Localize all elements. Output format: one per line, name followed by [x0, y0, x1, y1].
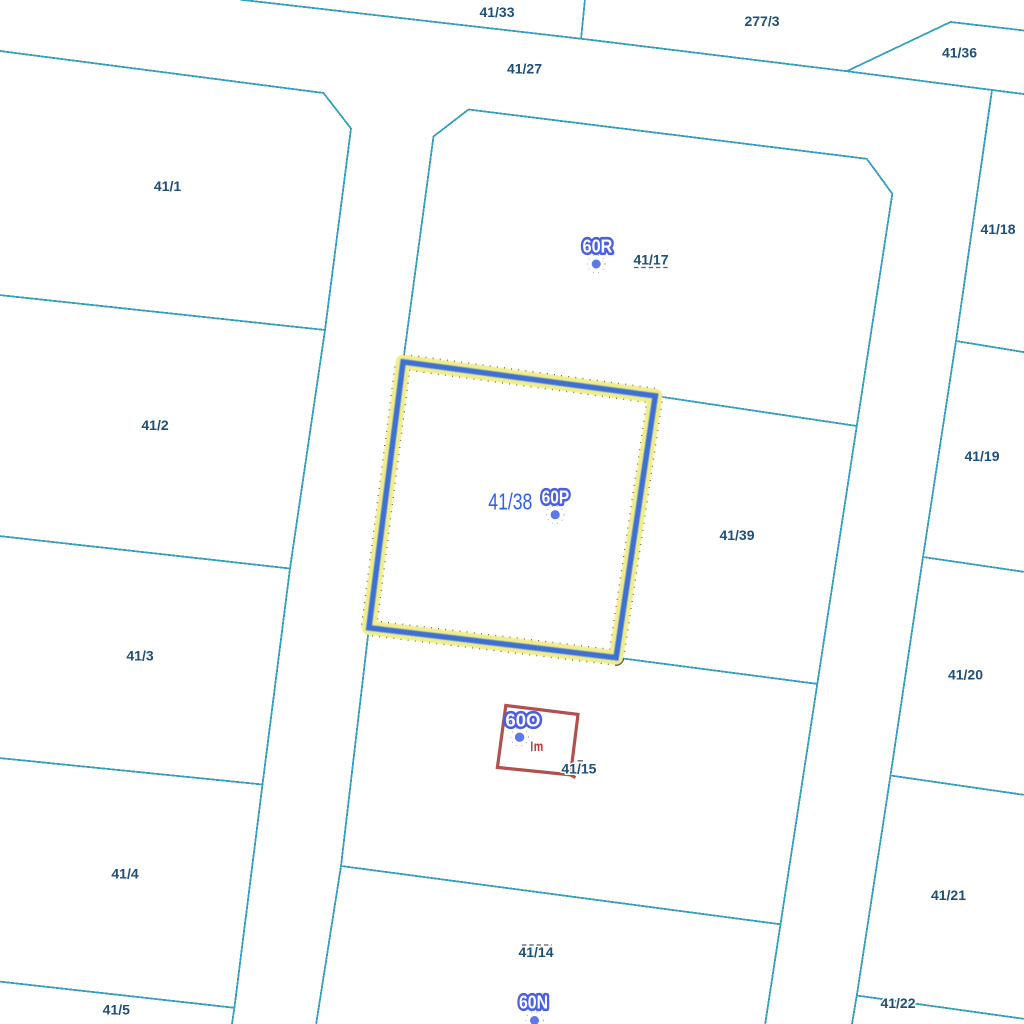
svg-text:41/4: 41/4: [111, 866, 138, 882]
svg-text:277/3: 277/3: [744, 13, 779, 29]
svg-text:41/5: 41/5: [103, 1002, 130, 1018]
svg-text:41/2: 41/2: [141, 417, 168, 433]
svg-text:60N: 60N: [519, 992, 548, 1013]
svg-text:41/14: 41/14: [518, 944, 553, 960]
svg-text:41/17: 41/17: [633, 252, 668, 268]
svg-text:41/1: 41/1: [154, 178, 181, 194]
svg-text:60P: 60P: [542, 487, 570, 508]
svg-text:41/33: 41/33: [479, 4, 514, 20]
svg-text:41/38: 41/38: [488, 488, 532, 514]
svg-text:41/27: 41/27: [507, 61, 542, 77]
svg-text:41/3: 41/3: [126, 648, 153, 664]
svg-text:60R: 60R: [583, 235, 613, 256]
svg-text:41/15: 41/15: [561, 761, 596, 777]
svg-text:41/36: 41/36: [942, 45, 977, 61]
svg-text:41/20: 41/20: [948, 667, 983, 683]
svg-text:41/21: 41/21: [931, 887, 966, 903]
svg-text:41/19: 41/19: [964, 448, 999, 464]
svg-text:41/22: 41/22: [880, 995, 915, 1011]
svg-text:60O: 60O: [505, 710, 540, 731]
svg-text:41/39: 41/39: [719, 527, 754, 543]
svg-text:41/18: 41/18: [980, 221, 1015, 237]
svg-text:m: m: [534, 738, 544, 754]
